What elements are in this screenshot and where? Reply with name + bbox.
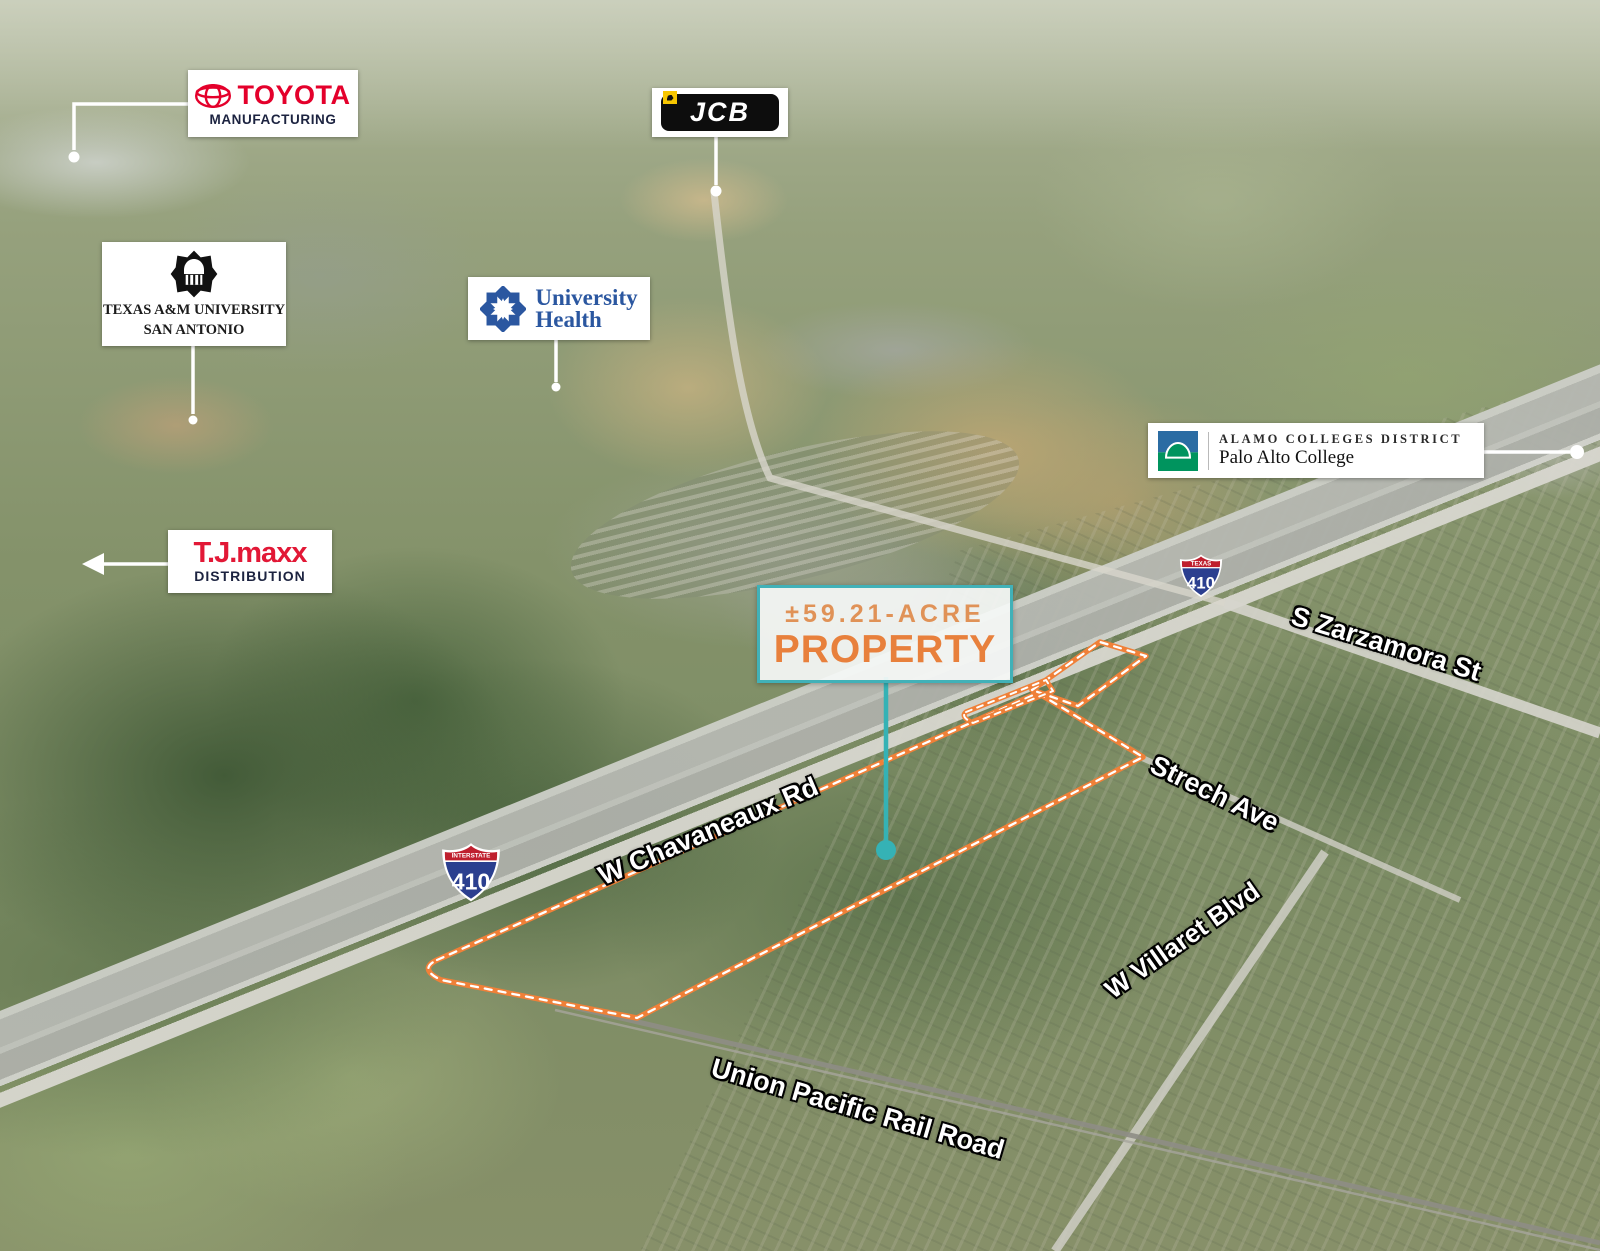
property-outline xyxy=(428,642,1146,1018)
university-health-callout: University Health xyxy=(468,277,650,340)
tamusa-callout: TEXAS A&M UNIVERSITY SAN ANTONIO xyxy=(102,242,286,346)
interstate-410-shield-east: TEXAS 410 xyxy=(1177,553,1225,599)
property-acreage: ±59.21-ACRE xyxy=(785,600,984,629)
property-title: PROPERTY xyxy=(774,631,997,668)
jcb-name: JCB xyxy=(690,97,750,128)
alamo-district-name: ALAMO COLLEGES DISTRICT xyxy=(1219,432,1462,447)
aerial-property-map: INTERSTATE 410 TEXAS 410 TOYOTA MANUFACT… xyxy=(0,0,1600,1251)
tjmaxx-subtitle: DISTRIBUTION xyxy=(194,568,306,584)
tjmaxx-logo-text: T.J.maxx xyxy=(194,539,307,568)
svg-text:TEXAS: TEXAS xyxy=(1191,560,1211,567)
callout-pointer-lines xyxy=(69,104,1585,575)
university-health-line1: University xyxy=(535,287,637,309)
property-marker-dot xyxy=(876,840,896,860)
alamo-colleges-callout: ALAMO COLLEGES DISTRICT Palo Alto Colleg… xyxy=(1148,423,1484,478)
interstate-410-shield-west: INTERSTATE 410 xyxy=(438,841,504,904)
toyota-logo-icon xyxy=(195,84,231,108)
toyota-callout: TOYOTA MANUFACTURING xyxy=(188,70,358,137)
university-health-logo-icon xyxy=(480,286,526,332)
alamo-divider xyxy=(1208,432,1209,470)
tjmaxx-callout: T.J.maxx DISTRIBUTION xyxy=(168,530,332,593)
jcb-logo: JCB xyxy=(661,94,779,131)
tjmaxx-arrowhead xyxy=(82,553,104,575)
jcb-digger-icon xyxy=(663,91,677,104)
palo-alto-college-logo-icon xyxy=(1158,431,1198,471)
toyota-subtitle: MANUFACTURING xyxy=(209,112,336,127)
svg-text:410: 410 xyxy=(452,868,491,894)
jcb-callout: JCB xyxy=(652,88,788,137)
property-label: ±59.21-ACRE PROPERTY xyxy=(757,585,1013,683)
property-marker xyxy=(876,677,896,860)
svg-text:410: 410 xyxy=(1187,573,1215,592)
toyota-name: TOYOTA xyxy=(237,80,350,111)
svg-text:INTERSTATE: INTERSTATE xyxy=(452,852,491,859)
tamusa-emblem-icon xyxy=(169,249,219,299)
tamusa-name-line1: TEXAS A&M UNIVERSITY xyxy=(103,301,285,319)
palo-alto-college-name: Palo Alto College xyxy=(1219,447,1462,469)
tamusa-name-line2: SAN ANTONIO xyxy=(144,321,245,339)
university-health-line2: Health xyxy=(535,309,637,331)
